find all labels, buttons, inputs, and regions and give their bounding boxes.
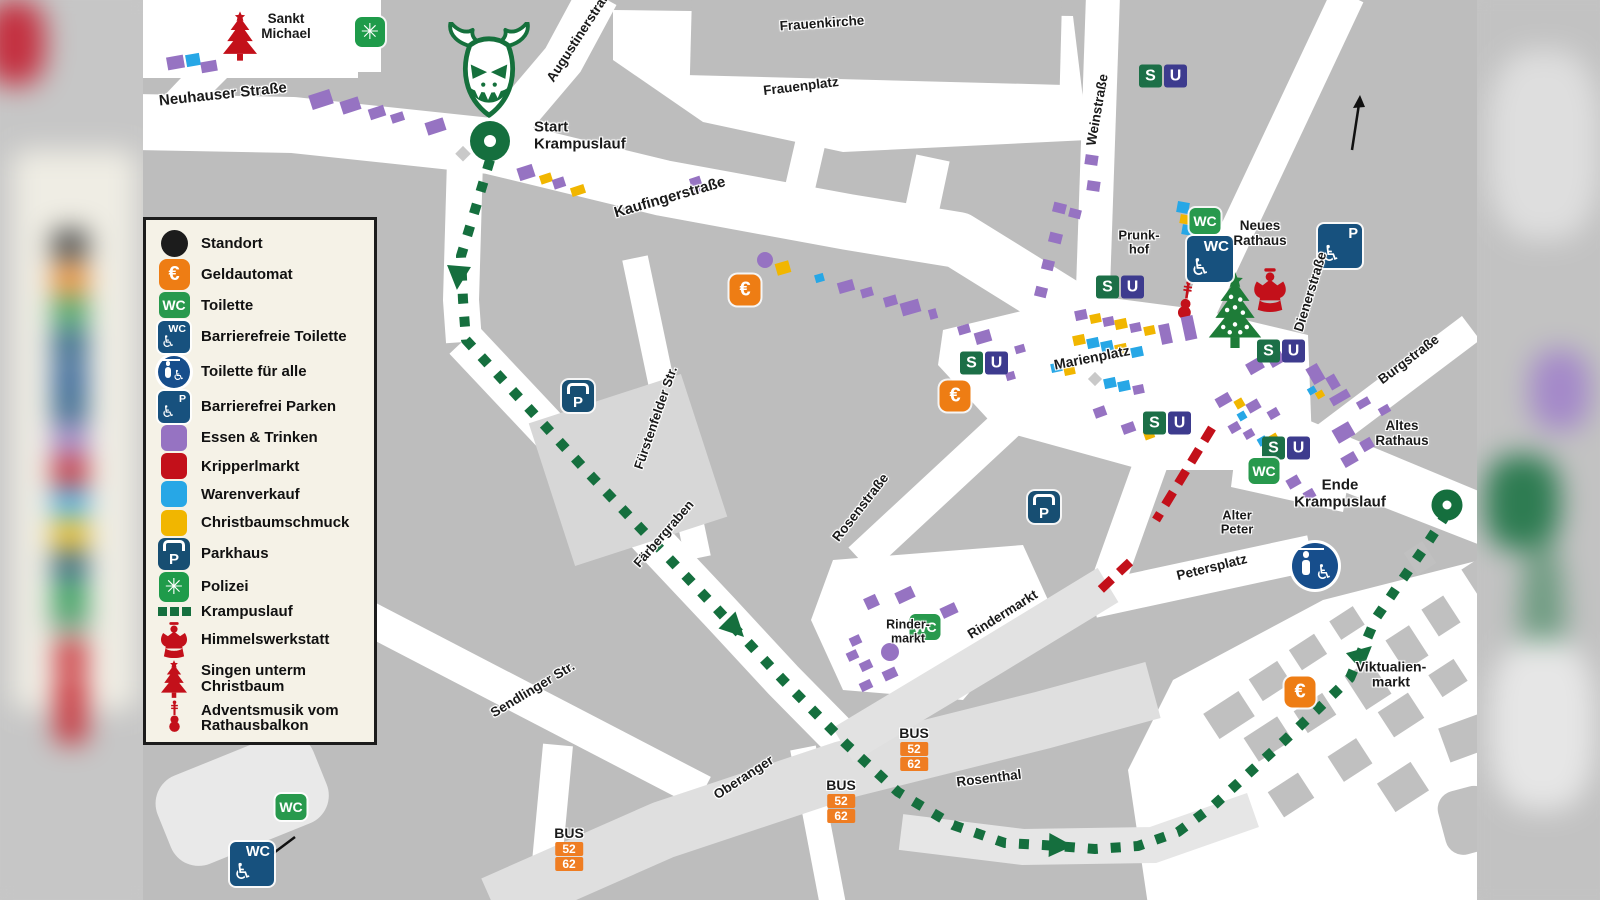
legend-label: Essen & Trinken xyxy=(201,430,318,445)
legend-item-euro: €Geldautomat xyxy=(156,259,366,290)
map-label-start-krampuslauf: Start Krampuslauf xyxy=(534,120,626,153)
singen-tree-icon xyxy=(156,660,192,698)
legend-item-pa: P♿Barrierefrei Parken xyxy=(156,391,366,423)
map-label-weinstrasse: Weinstraße xyxy=(1084,73,1111,147)
legend-icon-wca: WC♿ xyxy=(156,321,192,353)
corner-label: P xyxy=(179,393,186,405)
map-label-alter-peter: Alter Peter xyxy=(1221,509,1254,538)
map-label-ende-krampuslauf: Ende Krampuslauf xyxy=(1294,478,1386,511)
legend-icon-dash xyxy=(156,607,192,616)
legend-item-wca: WC♿Barrierefreie Toilette xyxy=(156,321,366,353)
map-label-neuhauser-strasse: Neuhauser Straße xyxy=(158,80,287,110)
person-body xyxy=(165,367,171,378)
legend-icon-food xyxy=(156,425,192,451)
map-label-neues-rathaus: Neues Rathaus xyxy=(1233,219,1286,249)
map-label-sankt-michael: Sankt Michael xyxy=(261,12,311,42)
map-label-fuerstenfelder-str: Fürstenfelder Str. xyxy=(632,365,681,471)
legend-icon-christbaum xyxy=(156,510,192,536)
blur-blob xyxy=(52,582,88,610)
blur-blob xyxy=(52,364,88,392)
legend-label: Toilette xyxy=(201,298,253,313)
map-label-petersplatz: Petersplatz xyxy=(1175,552,1248,584)
map-label-augustinerstrasse: Augustinerstraße xyxy=(544,0,617,85)
kripperlmarkt-swatch xyxy=(161,453,187,479)
legend-label: Kripperlmarkt xyxy=(201,459,299,474)
legend-label: Standort xyxy=(201,236,263,251)
legend-label: Christbaumschmuck xyxy=(201,515,349,530)
blur-blob xyxy=(1488,50,1600,240)
map-label-rinder-markt: Rinder- markt xyxy=(886,618,930,646)
map-label-rosenthal: Rosenthal xyxy=(956,768,1023,791)
pa: P♿ xyxy=(158,391,190,423)
legend: Standort€GeldautomatWCToiletteWC♿Barrier… xyxy=(143,217,377,745)
legend-item-food: Essen & Trinken xyxy=(156,425,366,451)
parkhaus-p: P xyxy=(169,552,179,567)
legend-label: Krampuslauf xyxy=(201,604,293,619)
blur-blob xyxy=(52,395,88,423)
legend-label: Toilette für alle xyxy=(201,364,307,379)
changing-table-icon xyxy=(162,359,180,361)
legend-label: Himmelswerkstatt xyxy=(201,632,329,647)
wca: WC♿ xyxy=(158,321,190,353)
blur-blob xyxy=(56,640,86,672)
legend-label: Warenverkauf xyxy=(201,487,300,502)
toilette-fuer-alle-icon: ♿ xyxy=(158,356,190,388)
person-icon xyxy=(166,361,170,365)
polizei-icon: ✳ xyxy=(159,572,189,602)
legend-icon-euro: € xyxy=(156,259,192,290)
krampuslauf-dash-icon xyxy=(158,607,191,616)
legend-icon-kripperl xyxy=(156,453,192,479)
map-label-viktualienmarkt: Viktualien- markt xyxy=(1356,660,1427,691)
map-label-rindermarkt: Rindermarkt xyxy=(965,588,1040,643)
wc-icon: WC xyxy=(159,292,190,318)
essen-trinken-swatch xyxy=(161,425,187,451)
legend-item-waren: Warenverkauf xyxy=(156,481,366,507)
legend-item-dot: Standort xyxy=(156,230,366,257)
map-label-oberanger: Oberanger xyxy=(711,753,776,803)
legend-label: Adventsmusik vom Rathausbalkon xyxy=(201,703,339,734)
parkhaus-roof xyxy=(163,540,185,551)
warenverkauf-swatch xyxy=(161,481,187,507)
toilette-fuer-alle-icon: ♿ xyxy=(157,355,191,389)
legend-item-pol: ✳Polizei xyxy=(156,572,366,602)
legend-icon-ph: P xyxy=(156,538,192,570)
blur-blob xyxy=(56,712,86,742)
legend-icon-pol: ✳ xyxy=(156,572,192,602)
christbaumschmuck-swatch xyxy=(161,510,187,536)
legend-label: Parkhaus xyxy=(201,546,269,561)
legend-item-wc: WCToilette xyxy=(156,292,366,318)
wheelchair-icon: ♿ xyxy=(172,367,185,384)
legend-icon-wc: WC xyxy=(156,292,192,318)
legend-icon-pa: P♿ xyxy=(156,391,192,423)
map-label-frauenplatz: Frauenplatz xyxy=(762,75,839,99)
legend-item-tree: Singen unterm Christbaum xyxy=(156,660,366,698)
legend-item-kripperl: Kripperlmarkt xyxy=(156,453,366,479)
blur-blob xyxy=(52,427,88,455)
legend-label: Barrierefreie Toilette xyxy=(201,329,347,344)
standort-dot-icon xyxy=(161,230,188,257)
map-label-faerbergraben: Färbergraben xyxy=(631,498,697,571)
map-label-prunkhof: Prunk- hof xyxy=(1118,229,1159,258)
adventsmusik-violin-icon xyxy=(156,700,192,736)
blur-blob xyxy=(52,458,88,486)
blur-blob xyxy=(1485,455,1560,550)
blur-blob xyxy=(52,551,88,579)
parkhaus-icon: P xyxy=(158,538,190,570)
wheelchair-icon: ♿ xyxy=(161,332,175,352)
blur-blob xyxy=(52,330,88,360)
barrierefrei-parken-icon: P♿ xyxy=(158,391,190,423)
map-label-kaufingerstrasse: Kaufingerstraße xyxy=(612,174,727,222)
himmelswerkstatt-angel-icon xyxy=(156,622,192,658)
map-label-sendlinger-str: Sendlinger Str. xyxy=(488,659,577,721)
legend-item-violin: Adventsmusik vom Rathausbalkon xyxy=(156,700,366,736)
blur-blob xyxy=(50,614,90,628)
map-label-altes-rathaus: Altes Rathaus xyxy=(1375,419,1428,449)
map-label-dienerstrasse: Dienerstraße xyxy=(1292,250,1330,333)
map-label-burgstrasse: Burgstraße xyxy=(1376,332,1442,387)
legend-icon-waren xyxy=(156,481,192,507)
wheelchair-icon: ♿ xyxy=(161,402,175,422)
blur-blob xyxy=(1490,640,1595,810)
blur-blob xyxy=(56,676,86,710)
city-map: SUSUSUSUSUSUWCWCWCWCWC♿WC♿♿€€€PPP♿✳BUS52… xyxy=(143,0,1477,900)
legend-label: Geldautomat xyxy=(201,267,293,282)
legend-icon-ta: ♿ xyxy=(156,355,192,389)
legend-item-angel: Himmelswerkstatt xyxy=(156,622,366,658)
blur-blob xyxy=(52,266,88,294)
legend-label: Barrierefrei Parken xyxy=(201,399,336,414)
blur-blob xyxy=(52,489,88,517)
map-label-rosenstrasse: Rosenstraße xyxy=(830,471,892,545)
blur-blob xyxy=(0,0,45,85)
legend-item-ph: PParkhaus xyxy=(156,538,366,570)
map-label-frauenkirche: Frauenkirche xyxy=(779,14,865,35)
map-label-marienplatz: Marienplatz xyxy=(1053,343,1132,373)
blur-blob xyxy=(52,520,88,548)
atm-euro-icon: € xyxy=(159,259,190,290)
blur-blob xyxy=(52,298,88,326)
legend-item-christbaum: Christbaumschmuck xyxy=(156,510,366,536)
legend-item-dash: Krampuslauf xyxy=(156,604,366,619)
legend-item-ta: ♿Toilette für alle xyxy=(156,355,366,389)
legend-icon-dot xyxy=(156,230,192,257)
legend-label: Polizei xyxy=(201,579,249,594)
blur-blob xyxy=(1530,350,1590,430)
blur-blob xyxy=(52,230,88,260)
legend-label: Singen unterm Christbaum xyxy=(201,663,306,694)
barrierefreie-toilette-icon: WC♿ xyxy=(158,321,190,353)
krampuslauf-map-screenshot: { "colors":{ "route_green":"#156F3E","wc… xyxy=(0,0,1600,900)
